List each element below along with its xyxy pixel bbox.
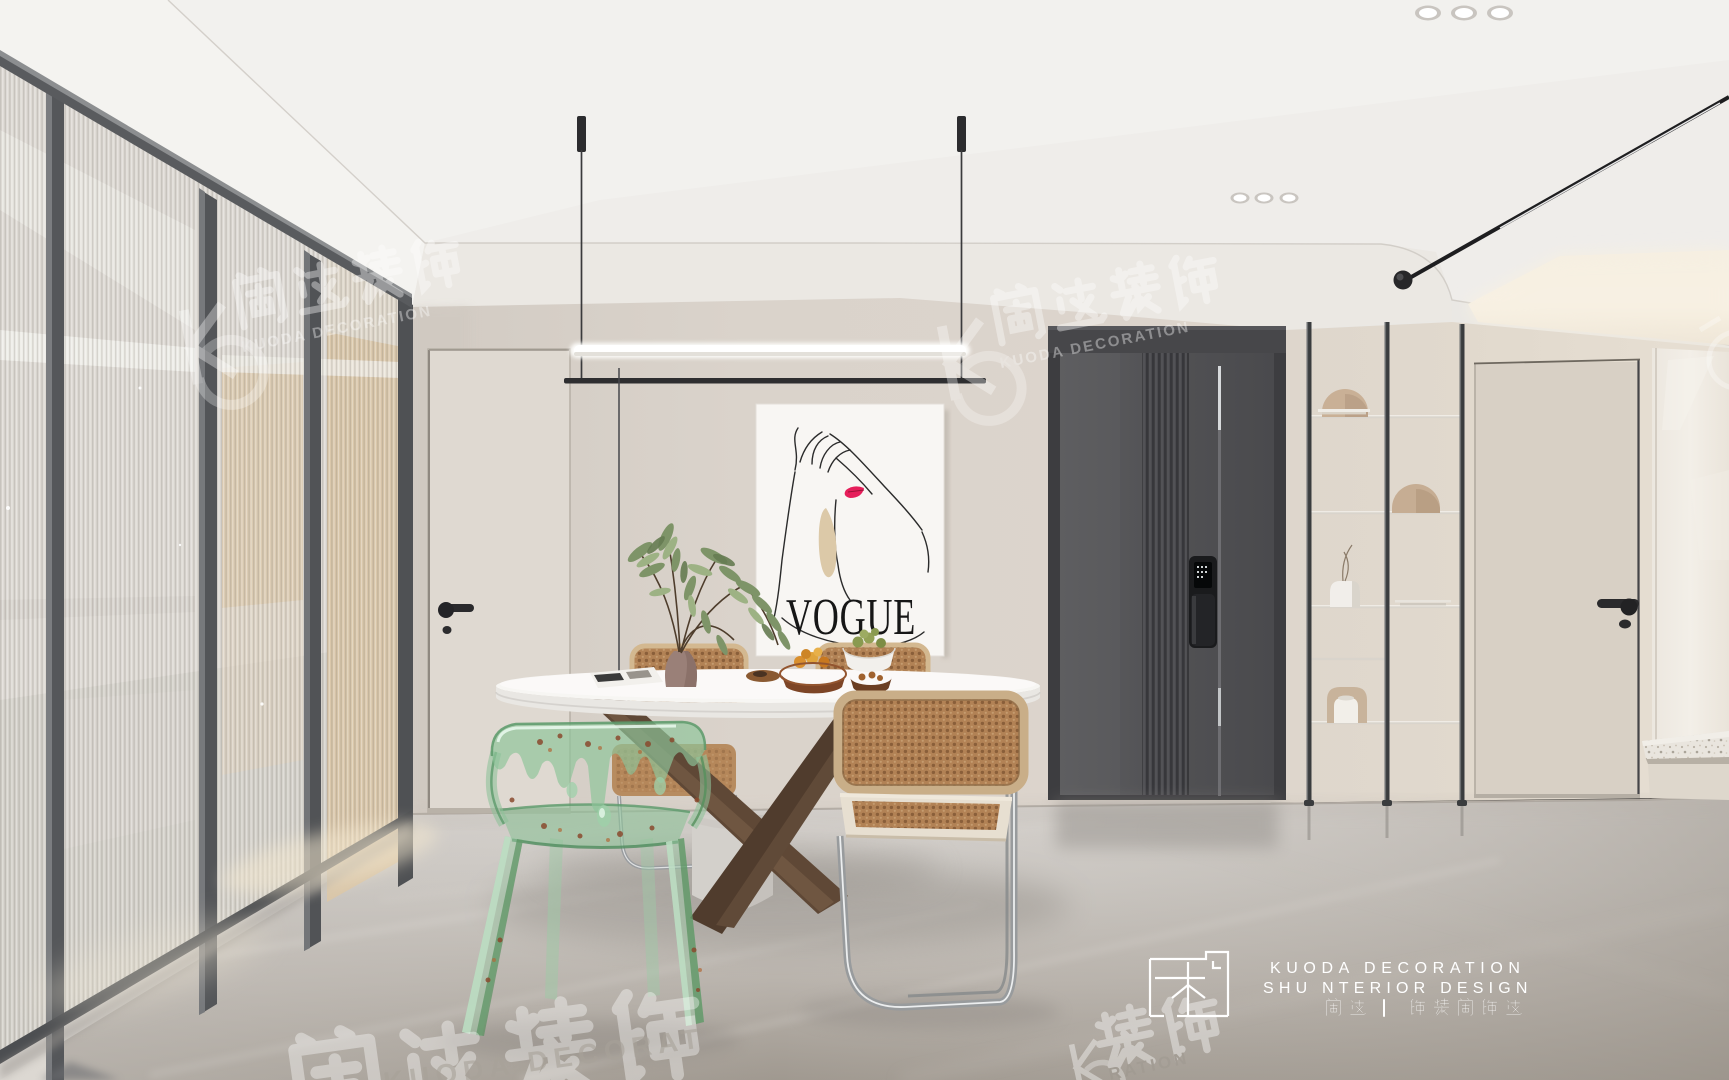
svg-text:KUODA DECORATION: KUODA DECORATION <box>1270 960 1526 977</box>
svg-text:VOGUE: VOGUE <box>786 589 916 646</box>
svg-text:SHU NTERIOR DESIGN: SHU NTERIOR DESIGN <box>1263 980 1533 997</box>
